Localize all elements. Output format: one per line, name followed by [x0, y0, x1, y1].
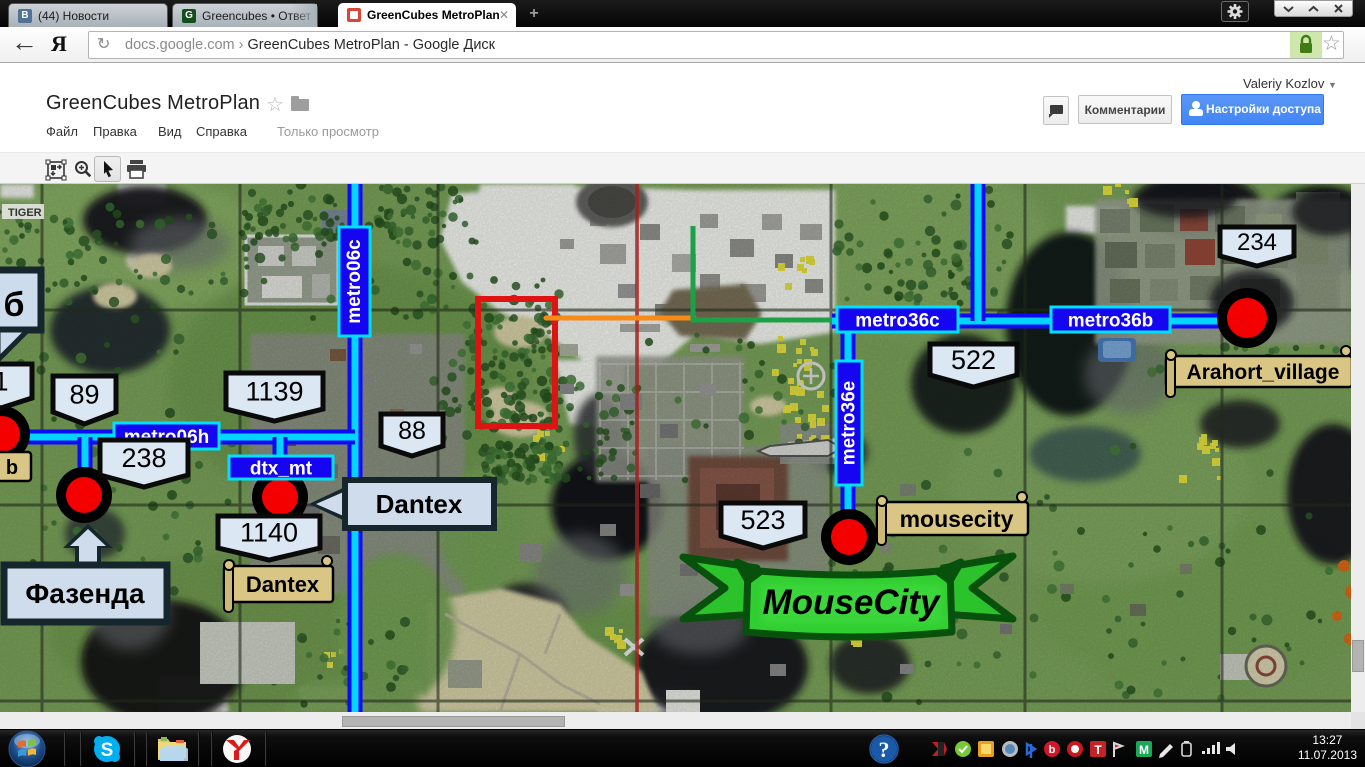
- svg-text:TIGER: TIGER: [8, 207, 42, 219]
- svg-text:MouseCity: MouseCity: [763, 583, 942, 622]
- svg-text:metro36b: metro36b: [1068, 310, 1154, 331]
- svg-text:metro36c: metro36c: [855, 310, 940, 331]
- svg-text:б: б: [3, 286, 24, 324]
- svg-text:mousecity: mousecity: [900, 506, 1014, 532]
- svg-text:Фазенда: Фазенда: [25, 578, 145, 609]
- svg-text:523: 523: [740, 505, 785, 535]
- svg-text:1139: 1139: [245, 377, 303, 407]
- svg-text:dtx_mt: dtx_mt: [250, 458, 313, 479]
- svg-text:1: 1: [0, 367, 9, 397]
- svg-text:234: 234: [1237, 229, 1277, 256]
- svg-text:238: 238: [121, 443, 166, 473]
- svg-text:522: 522: [951, 345, 996, 375]
- svg-text:T: T: [1094, 743, 1102, 757]
- svg-text:Dantex: Dantex: [376, 489, 463, 519]
- svg-text:89: 89: [69, 380, 99, 410]
- svg-text:S: S: [101, 740, 114, 761]
- svg-text:88: 88: [398, 417, 426, 445]
- svg-text:Dantex: Dantex: [246, 572, 320, 597]
- svg-text:M: M: [1139, 743, 1149, 757]
- svg-text:metro36e: metro36e: [839, 381, 860, 466]
- svg-text:1140: 1140: [240, 518, 298, 548]
- svg-text:?: ?: [879, 737, 890, 762]
- svg-text:b: b: [1049, 744, 1056, 756]
- svg-text:Arahort_village: Arahort_village: [1187, 361, 1340, 384]
- svg-text:metro06c: metro06c: [344, 239, 365, 324]
- svg-text:b: b: [6, 457, 18, 479]
